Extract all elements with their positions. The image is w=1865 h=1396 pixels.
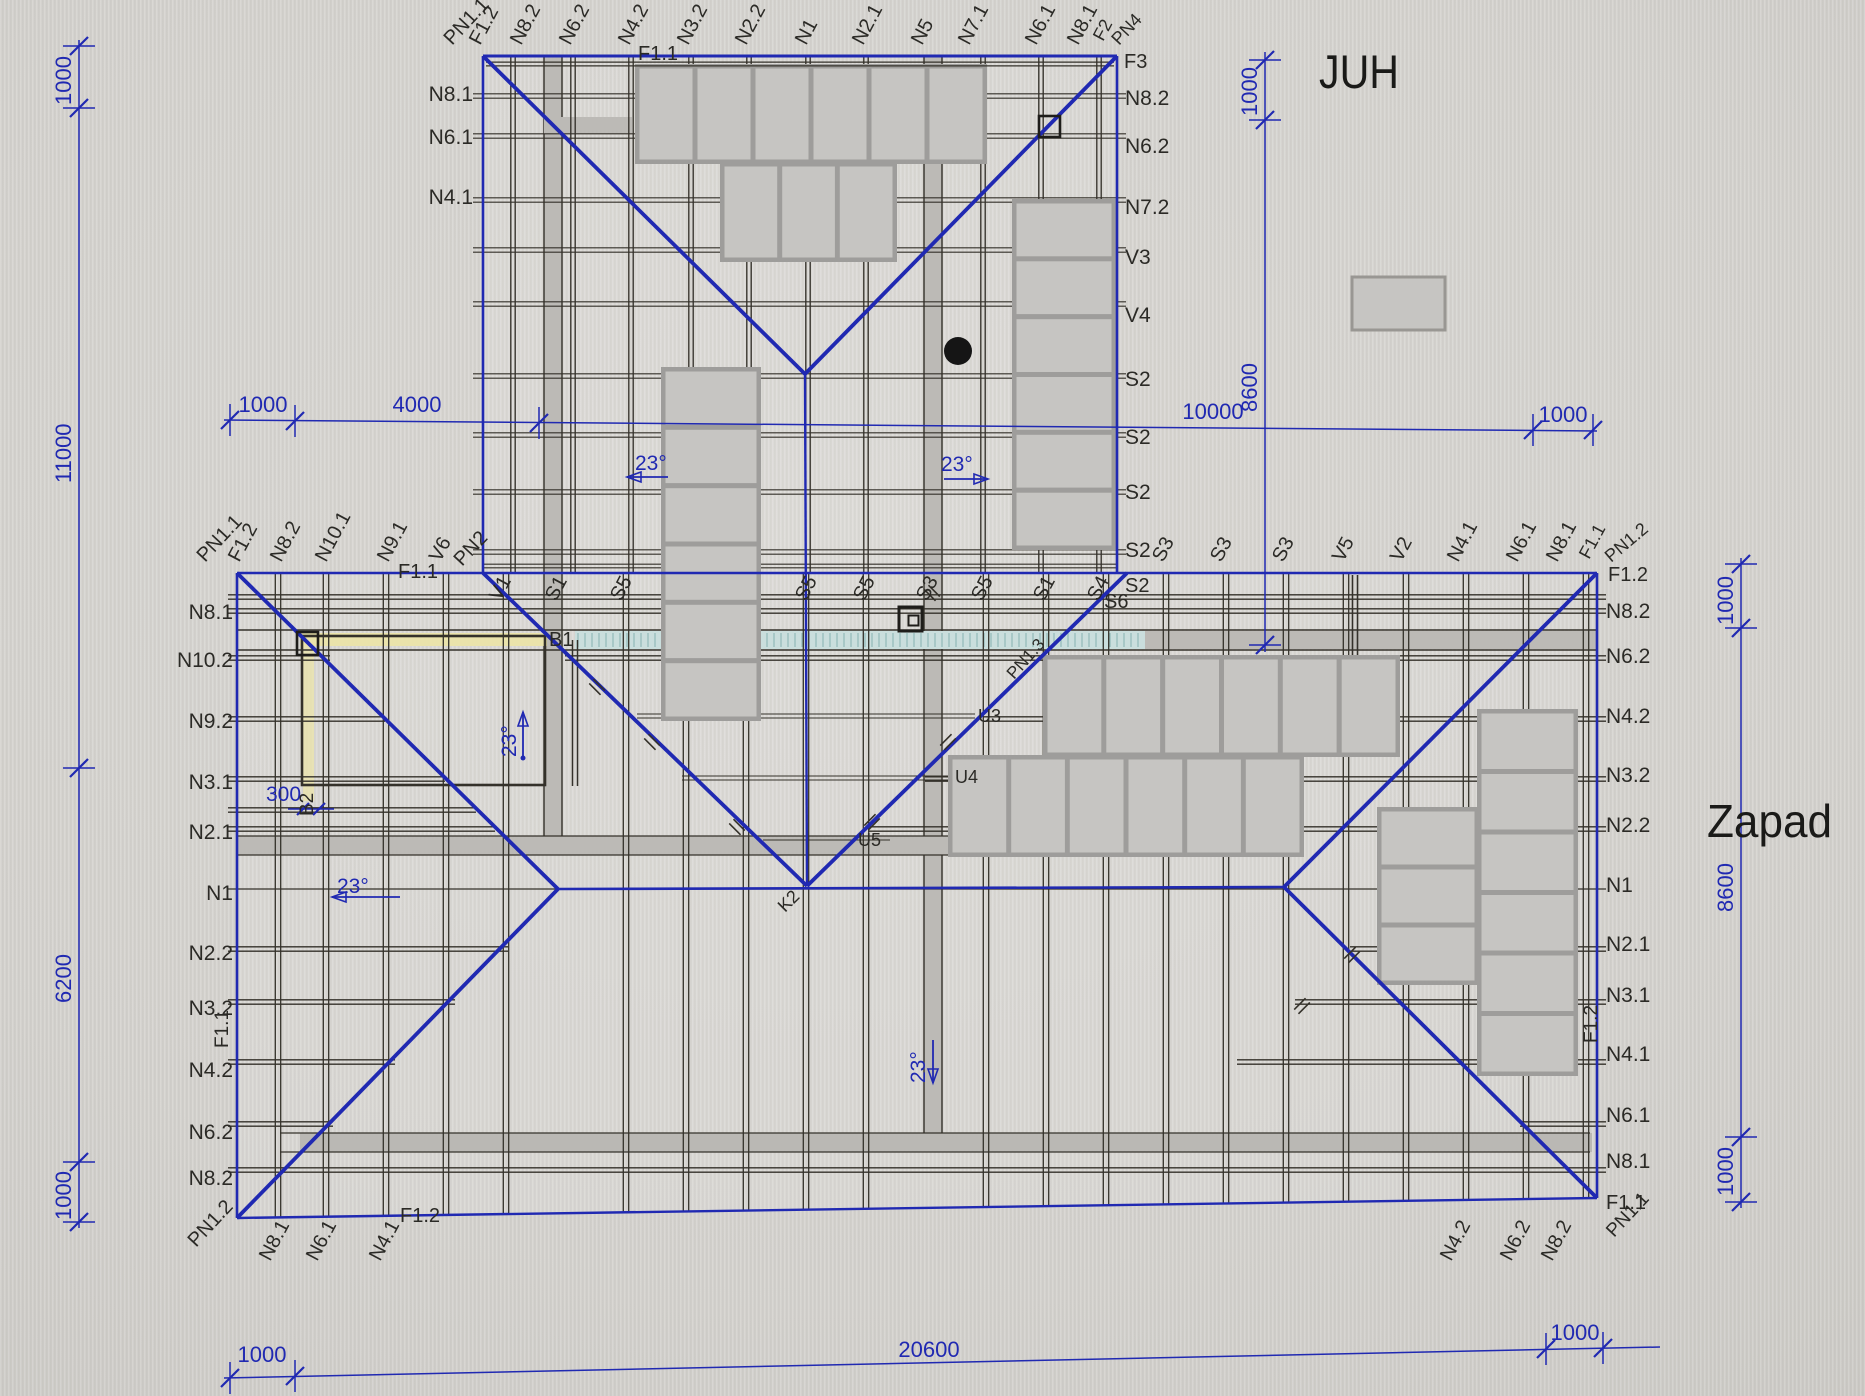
svg-text:N3.2: N3.2: [1606, 764, 1650, 787]
svg-text:1000: 1000: [1237, 67, 1262, 116]
svg-text:N3.1: N3.1: [1606, 984, 1650, 1007]
svg-text:N8.1: N8.1: [189, 601, 233, 624]
svg-text:Zapad: Zapad: [1707, 795, 1832, 847]
svg-text:S2: S2: [1125, 481, 1151, 504]
svg-text:N6.2: N6.2: [1125, 135, 1169, 158]
svg-text:V3: V3: [1125, 246, 1151, 269]
svg-text:N7.2: N7.2: [1125, 196, 1169, 219]
svg-text:8600: 8600: [1237, 363, 1262, 412]
svg-text:U4: U4: [955, 767, 978, 787]
svg-text:1000: 1000: [1539, 402, 1588, 427]
svg-text:JUH: JUH: [1319, 45, 1399, 98]
svg-text:N1: N1: [206, 882, 233, 905]
svg-text:1000: 1000: [238, 1342, 287, 1367]
svg-text:N1: N1: [1606, 874, 1633, 897]
svg-text:S2: S2: [1125, 575, 1149, 597]
svg-text:N4.2: N4.2: [1606, 705, 1650, 728]
svg-text:N4.1: N4.1: [1606, 1043, 1650, 1066]
svg-text:N6.2: N6.2: [189, 1121, 233, 1144]
svg-text:1000: 1000: [239, 392, 288, 417]
svg-text:V4: V4: [1125, 304, 1151, 327]
svg-text:B2: B2: [297, 793, 318, 816]
svg-text:11000: 11000: [51, 423, 76, 483]
svg-text:N4.2: N4.2: [189, 1059, 233, 1082]
svg-text:N6.1: N6.1: [1606, 1104, 1650, 1127]
svg-text:N2.2: N2.2: [1606, 814, 1650, 837]
svg-text:1000: 1000: [1713, 576, 1738, 625]
svg-text:20600: 20600: [898, 1337, 959, 1362]
svg-text:F3: F3: [1124, 51, 1147, 73]
svg-text:B1: B1: [549, 629, 573, 651]
svg-text:23°: 23°: [635, 452, 667, 475]
svg-text:23°: 23°: [498, 725, 521, 757]
svg-text:4000: 4000: [393, 392, 442, 417]
svg-text:F1.2: F1.2: [1581, 1005, 1602, 1043]
svg-text:N9.2: N9.2: [189, 710, 233, 733]
svg-text:F1.1: F1.1: [212, 1010, 233, 1048]
svg-text:F1.2: F1.2: [400, 1205, 440, 1227]
svg-text:N3.1: N3.1: [189, 771, 233, 794]
svg-text:N2.2: N2.2: [189, 942, 233, 965]
svg-text:23°: 23°: [941, 453, 973, 476]
svg-text:N8.2: N8.2: [189, 1167, 233, 1190]
svg-text:N8.2: N8.2: [1606, 600, 1650, 623]
svg-text:U3: U3: [978, 706, 1001, 726]
svg-text:N4.1: N4.1: [429, 186, 473, 209]
svg-text:N6.1: N6.1: [429, 126, 473, 149]
svg-text:8600: 8600: [1713, 863, 1738, 912]
svg-text:6200: 6200: [51, 954, 76, 1003]
svg-text:N2.1: N2.1: [1606, 933, 1650, 956]
svg-text:23°: 23°: [907, 1051, 930, 1083]
svg-text:U5: U5: [858, 830, 881, 850]
svg-text:F1.2: F1.2: [1608, 564, 1648, 586]
svg-text:F1.1: F1.1: [638, 43, 678, 65]
svg-text:N2.1: N2.1: [189, 821, 233, 844]
svg-text:S2: S2: [1125, 426, 1151, 449]
svg-text:S2: S2: [1125, 368, 1151, 391]
svg-text:N8.1: N8.1: [429, 83, 473, 106]
svg-text:N8.1: N8.1: [1606, 1150, 1650, 1173]
svg-text:S2: S2: [1125, 539, 1151, 562]
svg-text:1000: 1000: [1551, 1320, 1600, 1345]
svg-text:1000: 1000: [51, 1171, 76, 1220]
svg-text:23°: 23°: [337, 875, 369, 898]
svg-text:300: 300: [266, 783, 301, 806]
svg-text:N8.2: N8.2: [1125, 87, 1169, 110]
svg-text:1000: 1000: [51, 56, 76, 105]
svg-text:F1.1: F1.1: [398, 561, 438, 583]
svg-text:N6.2: N6.2: [1606, 645, 1650, 668]
svg-text:N10.2: N10.2: [177, 649, 233, 672]
svg-text:1000: 1000: [1713, 1147, 1738, 1196]
svg-text:10000: 10000: [1182, 399, 1243, 424]
